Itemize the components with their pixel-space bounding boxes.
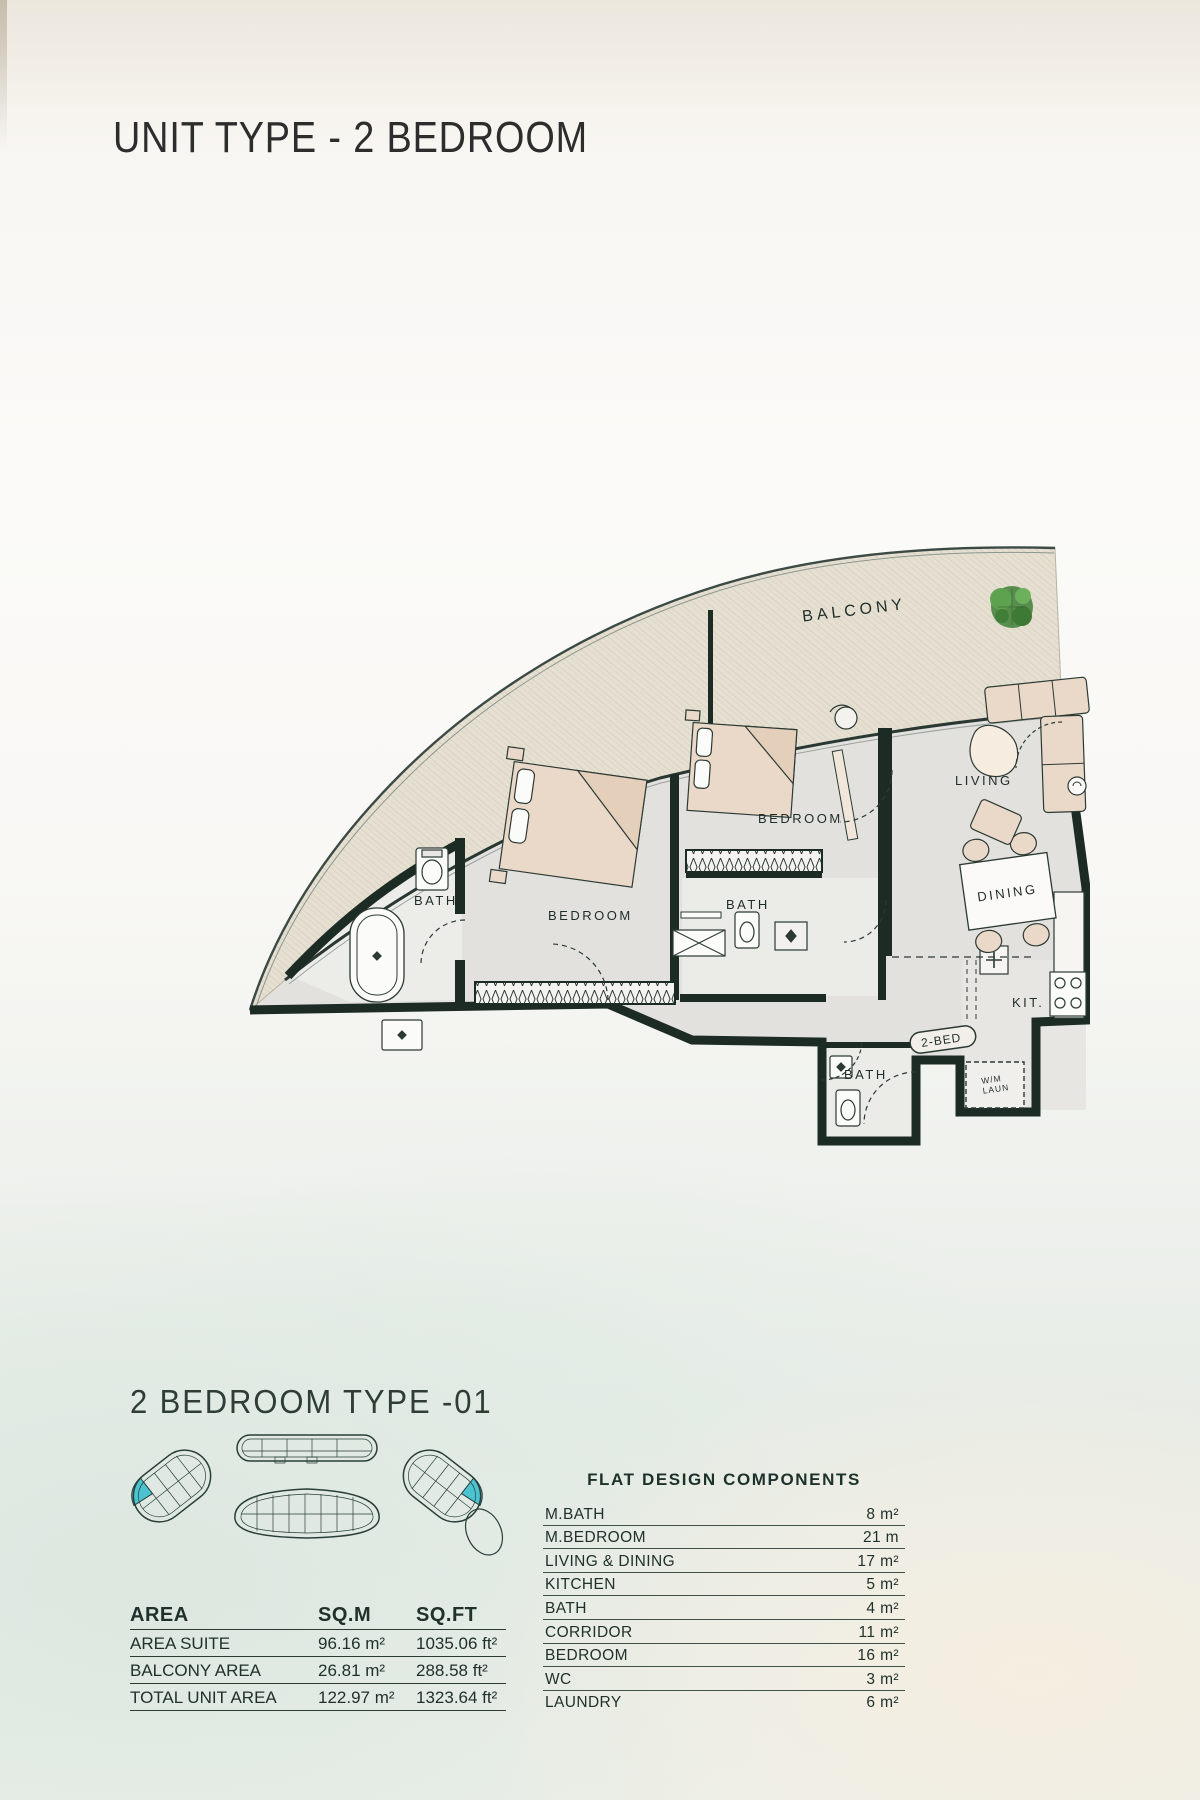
- table-row: BEDROOM 16 m²: [543, 1644, 905, 1668]
- toilet-master: [416, 848, 448, 890]
- components-table: M.BATH 8 m² M.BEDROOM 21 m LIVING & DINI…: [543, 1502, 905, 1713]
- shower-mid-bath: [673, 930, 725, 956]
- row-sqm: 122.97 m²: [318, 1688, 416, 1708]
- table-row: WC 3 m²: [543, 1667, 905, 1691]
- component-value: 8 m²: [866, 1506, 899, 1524]
- room-label-bath-bottom: BATH: [844, 1067, 888, 1082]
- wardrobe-master-bedroom: [475, 982, 675, 1004]
- component-label: LAUNDRY: [545, 1694, 622, 1712]
- keyplan-building-centre: [235, 1489, 379, 1538]
- toilet-mid-bath: [735, 912, 759, 948]
- row-sqft: 288.58 ft²: [416, 1661, 506, 1681]
- room-label-bedroom-second: BEDROOM: [758, 811, 843, 826]
- sink-master: [382, 1020, 422, 1050]
- table-row: BATH 4 m²: [543, 1596, 905, 1620]
- keyplan-building-right: [393, 1440, 491, 1533]
- keyplan-building-left: [123, 1440, 221, 1533]
- component-label: WC: [545, 1671, 572, 1689]
- keyplan-ellipse: [458, 1503, 509, 1561]
- section-title: 2 BEDROOM TYPE -01: [130, 1383, 493, 1421]
- bathtub: [350, 908, 404, 1002]
- row-sqft: 1035.06 ft²: [416, 1634, 506, 1654]
- stove: [1050, 972, 1086, 1016]
- vanity-mid-bath: [681, 912, 721, 918]
- row-label: BALCONY AREA: [130, 1661, 318, 1681]
- cabinet-mid-bath: [775, 922, 807, 950]
- component-label: CORRIDOR: [545, 1624, 633, 1642]
- component-label: KITCHEN: [545, 1576, 616, 1594]
- floor-plan-svg: BALCONY LIVING DINING BEDROOM BEDROOM BA…: [230, 460, 1090, 1160]
- table-row: CORRIDOR 11 m²: [543, 1620, 905, 1644]
- component-value: 17 m²: [857, 1553, 899, 1571]
- room-label-living: LIVING: [955, 773, 1013, 788]
- table-row: LIVING & DINING 17 m²: [543, 1549, 905, 1573]
- col-header-sqm: SQ.M: [318, 1604, 416, 1627]
- floor-plan: BALCONY LIVING DINING BEDROOM BEDROOM BA…: [230, 460, 1090, 1160]
- room-label-kitchen: KIT.: [1012, 995, 1044, 1010]
- row-label: AREA SUITE: [130, 1634, 318, 1654]
- component-value: 16 m²: [857, 1647, 899, 1665]
- table-row: LAUNDRY 6 m²: [543, 1691, 905, 1714]
- room-label-bath-mid: BATH: [726, 897, 770, 912]
- background-left-edge: [0, 0, 7, 150]
- component-value: 6 m²: [866, 1694, 899, 1712]
- component-value: 5 m²: [866, 1576, 899, 1594]
- area-table-header: AREA SQ.M SQ.FT: [130, 1600, 506, 1630]
- component-value: 4 m²: [866, 1600, 899, 1618]
- key-plan-svg: [100, 1418, 510, 1608]
- toilet-bottom-bath: [836, 1090, 860, 1126]
- room-label-bedroom-master: BEDROOM: [548, 908, 633, 923]
- keyplan-building-top: [237, 1435, 377, 1463]
- table-row: TOTAL UNIT AREA 122.97 m² 1323.64 ft²: [130, 1684, 506, 1711]
- col-header-area: AREA: [130, 1604, 318, 1627]
- table-row: AREA SUITE 96.16 m² 1035.06 ft²: [130, 1630, 506, 1657]
- component-label: LIVING & DINING: [545, 1553, 675, 1571]
- room-label-bath-master: BATH: [414, 893, 458, 908]
- component-label: M.BATH: [545, 1506, 605, 1524]
- table-row: M.BATH 8 m²: [543, 1502, 905, 1526]
- components-table-title: FLAT DESIGN COMPONENTS: [543, 1470, 905, 1490]
- component-value: 3 m²: [866, 1671, 899, 1689]
- component-label: M.BEDROOM: [545, 1529, 646, 1547]
- component-label: BEDROOM: [545, 1647, 628, 1665]
- row-sqm: 26.81 m²: [318, 1661, 416, 1681]
- table-row: KITCHEN 5 m²: [543, 1573, 905, 1597]
- component-value: 11 m²: [859, 1624, 899, 1642]
- component-label: BATH: [545, 1600, 587, 1618]
- table-row: BALCONY AREA 26.81 m² 288.58 ft²: [130, 1657, 506, 1684]
- row-label: TOTAL UNIT AREA: [130, 1688, 318, 1708]
- wardrobe-second-bedroom: [686, 850, 822, 872]
- row-sqft: 1323.64 ft²: [416, 1688, 506, 1708]
- key-plan: [100, 1418, 510, 1608]
- component-value: 21 m: [863, 1529, 899, 1547]
- area-table: AREA SQ.M SQ.FT AREA SUITE 96.16 m² 1035…: [130, 1600, 506, 1711]
- col-header-sqft: SQ.FT: [416, 1604, 506, 1627]
- table-row: M.BEDROOM 21 m: [543, 1526, 905, 1550]
- page-title: UNIT TYPE - 2 BEDROOM: [113, 113, 588, 163]
- row-sqm: 96.16 m²: [318, 1634, 416, 1654]
